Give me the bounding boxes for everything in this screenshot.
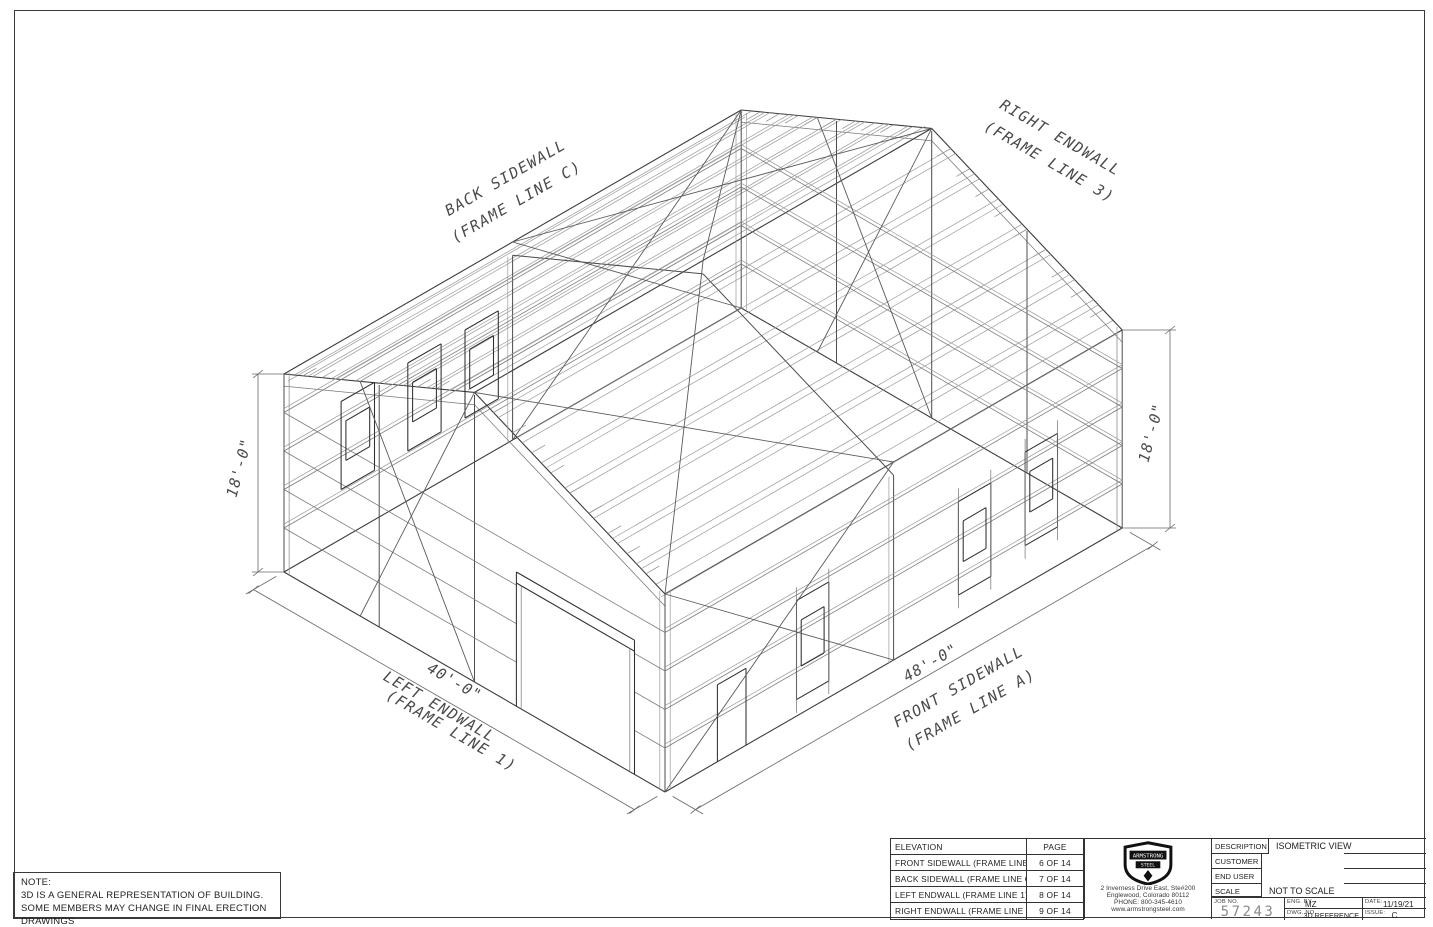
date-value: 11/19/21 bbox=[1383, 900, 1414, 909]
page-table-header: PAGE bbox=[1027, 839, 1083, 855]
scale-row: SCALENOT TO SCALE bbox=[1212, 884, 1426, 898]
note-line-2: SOME MEMBERS MAY CHANGE IN FINAL ERECTIO… bbox=[21, 902, 276, 927]
date-issue-cell: DATE: 11/19/21 ISSUE: C bbox=[1363, 898, 1426, 920]
company-address-line1: 2 Inverness Drive East, Ste#200 bbox=[1085, 885, 1211, 892]
note-box: NOTE: 3D IS A GENERAL REPRESENTATION OF … bbox=[13, 872, 281, 919]
note-line-1: 3D IS A GENERAL REPRESENTATION OF BUILDI… bbox=[21, 889, 276, 902]
elevation-table-header: ELEVATION bbox=[891, 839, 1027, 855]
elevation-row-page: 6 OF 14 bbox=[1027, 855, 1083, 871]
issue-label: ISSUE: bbox=[1365, 910, 1385, 916]
job-number-cell: JOB NO. 57243 bbox=[1212, 898, 1285, 920]
dwg-no-value: 3D REFERENCE bbox=[1303, 911, 1359, 920]
title-block-fields: DESCRIPTIONISOMETRIC VIEW CUSTOMER END U… bbox=[1212, 838, 1426, 919]
dwg-no-row: DWG. NO. 3D REFERENCE bbox=[1285, 909, 1362, 920]
logo-name-bottom: STEEL bbox=[1141, 863, 1155, 869]
elevation-row-page: 9 OF 14 bbox=[1027, 903, 1083, 919]
description-label: DESCRIPTION bbox=[1212, 839, 1269, 854]
description-row: DESCRIPTIONISOMETRIC VIEW bbox=[1212, 839, 1426, 854]
elevation-page-table: ELEVATION PAGE FRONT SIDEWALL (FRAME LIN… bbox=[890, 838, 1084, 920]
drawing-sheet: BACK SIDEWALL (FRAME LINE C) RIGHT ENDWA… bbox=[0, 0, 1433, 927]
job-no-value: 57243 bbox=[1212, 904, 1284, 920]
eng-by-row: ENG. BY. MZ bbox=[1285, 898, 1362, 909]
date-label: DATE: bbox=[1365, 899, 1383, 905]
elevation-row-label: RIGHT ENDWALL (FRAME LINE 3) bbox=[891, 903, 1027, 919]
elevation-row-label: FRONT SIDEWALL (FRAME LINE A) bbox=[891, 855, 1027, 871]
end-user-label: END USER bbox=[1212, 869, 1262, 884]
elevation-row-page: 7 OF 14 bbox=[1027, 871, 1083, 887]
issue-row: ISSUE: C bbox=[1363, 909, 1426, 920]
description-value: ISOMETRIC VIEW bbox=[1269, 839, 1352, 851]
job-no-label: JOB NO. bbox=[1214, 899, 1239, 905]
note-title: NOTE: bbox=[21, 876, 276, 889]
logo-name-top: ARMSTRONG bbox=[1133, 853, 1164, 859]
armstrong-steel-shield-logo: ARMSTRONG STEEL bbox=[1121, 841, 1175, 885]
eave-height-dimension-right: 18'-0" bbox=[1135, 401, 1168, 464]
company-website: www.armstrongsteel.com bbox=[1085, 906, 1211, 913]
isometric-building-drawing: BACK SIDEWALL (FRAME LINE C) RIGHT ENDWA… bbox=[0, 0, 1433, 927]
company-logo-cell: ARMSTRONG STEEL 2 Inverness Drive East, … bbox=[1084, 838, 1212, 919]
job-info-band: JOB NO. 57243 ENG. BY. MZ DWG. NO. 3D RE… bbox=[1212, 898, 1426, 920]
elevation-row-label: BACK SIDEWALL (FRAME LINE C) bbox=[891, 871, 1027, 887]
left-endwall-label-line2: (FRAME LINE 1) bbox=[383, 686, 520, 775]
elevation-row-page: 8 OF 14 bbox=[1027, 887, 1083, 903]
date-row: DATE: 11/19/21 bbox=[1363, 898, 1426, 909]
building-wireframe bbox=[246, 110, 1176, 814]
scale-label: SCALE bbox=[1212, 884, 1262, 897]
elevation-row-label: LEFT ENDWALL (FRAME LINE 1) bbox=[891, 887, 1027, 903]
issue-value: C bbox=[1392, 911, 1398, 920]
sidewall-length-dimension: 48'-0" bbox=[900, 640, 961, 686]
eng-by-value: MZ bbox=[1305, 900, 1317, 909]
customer-row: CUSTOMER bbox=[1212, 854, 1426, 869]
customer-label: CUSTOMER bbox=[1212, 854, 1262, 869]
eng-dwg-cell: ENG. BY. MZ DWG. NO. 3D REFERENCE bbox=[1285, 898, 1363, 920]
end-user-row: END USER bbox=[1212, 869, 1426, 884]
company-phone: PHONE: 800-345-4610 bbox=[1085, 899, 1211, 906]
company-address-line2: Englewood, Colorado 80112 bbox=[1085, 892, 1211, 899]
eave-height-dimension-left: 18'-0" bbox=[223, 436, 256, 499]
scale-value: NOT TO SCALE bbox=[1262, 884, 1335, 896]
drawing-labels: BACK SIDEWALL (FRAME LINE C) RIGHT ENDWA… bbox=[223, 96, 1168, 776]
